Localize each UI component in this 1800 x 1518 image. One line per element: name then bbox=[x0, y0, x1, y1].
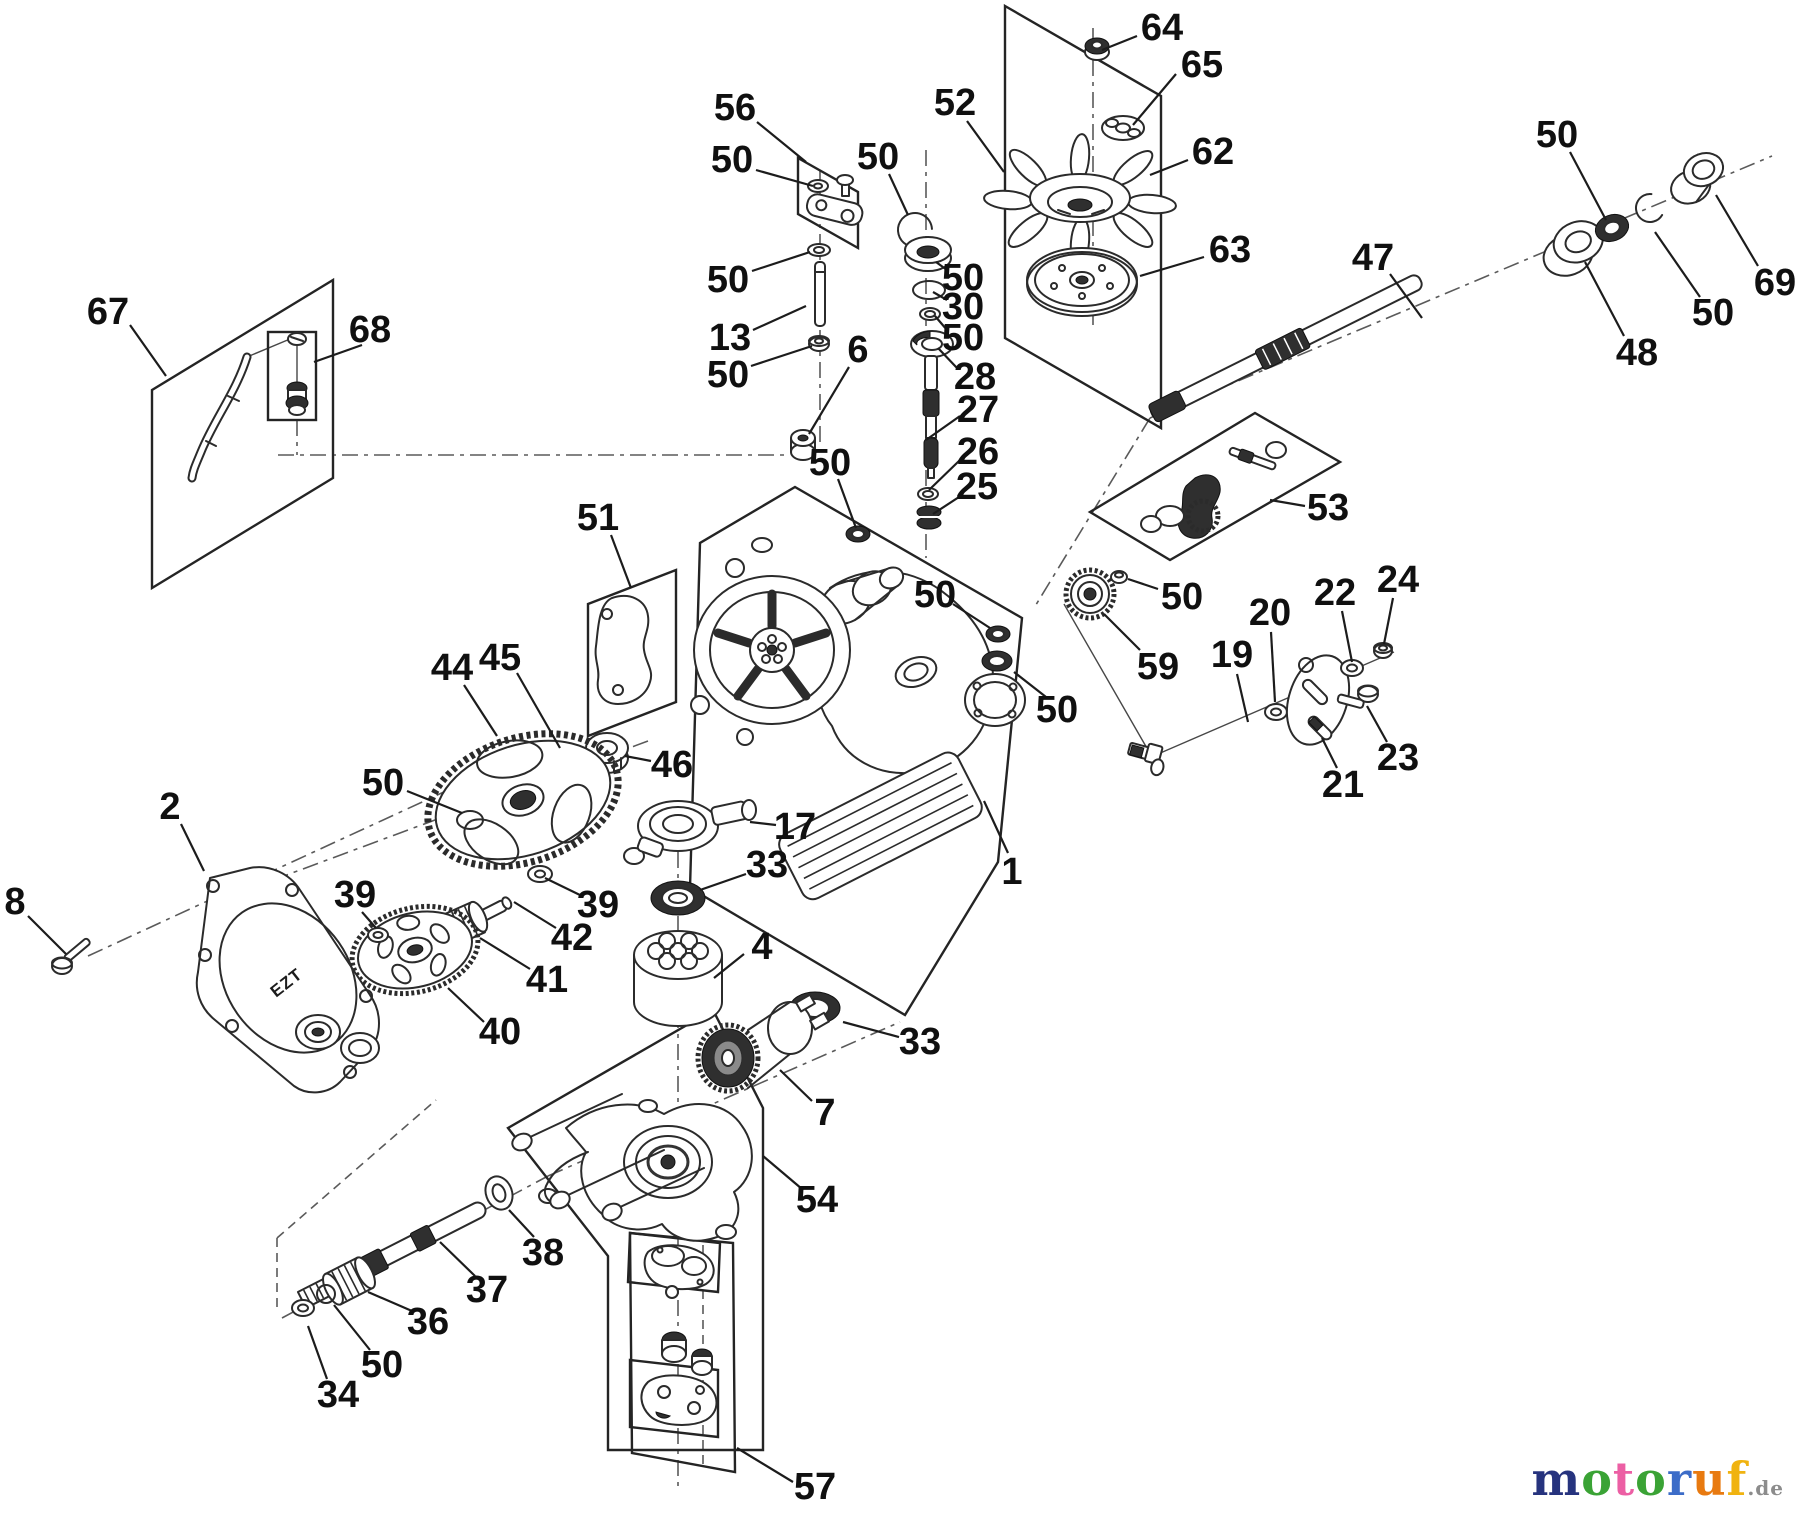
washer-50-above-pin bbox=[808, 244, 830, 256]
callout-25: 25 bbox=[956, 466, 998, 508]
leader-line-63 bbox=[1140, 257, 1204, 276]
leader-line-24 bbox=[1384, 598, 1393, 644]
callout-65: 65 bbox=[1181, 44, 1223, 86]
callout-4: 4 bbox=[751, 926, 772, 968]
fan-62 bbox=[983, 133, 1176, 266]
washer-26 bbox=[918, 488, 938, 500]
valve-washer bbox=[666, 1286, 678, 1298]
control-kit-53 bbox=[1141, 442, 1286, 538]
leader-line-42 bbox=[514, 902, 556, 928]
shaft-47 bbox=[1147, 270, 1425, 424]
cover-seal-boss bbox=[296, 1015, 340, 1049]
oil-tube-67-inner bbox=[192, 357, 247, 478]
leader-line-20 bbox=[1271, 632, 1275, 702]
callout-48: 48 bbox=[1616, 332, 1658, 374]
leader-line-53 bbox=[1270, 500, 1305, 506]
callout-50: 50 bbox=[914, 574, 956, 616]
callout-50: 50 bbox=[809, 442, 851, 484]
callout-27: 27 bbox=[957, 389, 999, 431]
callout-45: 45 bbox=[479, 637, 521, 679]
callout-38: 38 bbox=[522, 1232, 564, 1274]
callout-54: 54 bbox=[796, 1179, 838, 1221]
leader-line-48 bbox=[1585, 262, 1624, 336]
leader-line-2 bbox=[181, 824, 204, 871]
brake-gear-assembly bbox=[1066, 570, 1127, 618]
callout-36: 36 bbox=[407, 1301, 449, 1343]
leader-line-33 bbox=[700, 874, 746, 890]
watermark-letter: o bbox=[1635, 1452, 1667, 1506]
bolt-53-head bbox=[1266, 442, 1286, 458]
center-section-54 bbox=[510, 1094, 752, 1241]
leader-line-50 bbox=[1128, 579, 1158, 589]
leader-line-13 bbox=[753, 306, 806, 330]
callout-67: 67 bbox=[87, 291, 129, 333]
callout-52: 52 bbox=[934, 82, 976, 124]
housing-ear bbox=[691, 696, 709, 714]
gasket-51 bbox=[596, 596, 652, 704]
leader-line-69 bbox=[1716, 195, 1758, 266]
callout-50: 50 bbox=[1161, 576, 1203, 618]
center-section-body bbox=[566, 1104, 752, 1241]
housing-top-boss bbox=[752, 538, 772, 552]
leader-line-6 bbox=[809, 367, 849, 434]
valve-kit-57 bbox=[641, 1245, 716, 1425]
cap-69 bbox=[1662, 148, 1732, 209]
valve-plugs bbox=[662, 1332, 712, 1375]
retaining-ring-50-right bbox=[1631, 189, 1669, 227]
bracket-kit-assembly bbox=[791, 175, 864, 460]
callout-7: 7 bbox=[814, 1092, 835, 1134]
callout-50: 50 bbox=[1692, 292, 1734, 334]
callout-69: 69 bbox=[1754, 262, 1796, 304]
leader-line-57 bbox=[737, 1448, 793, 1482]
callout-46: 46 bbox=[651, 744, 693, 786]
callout-33: 33 bbox=[899, 1021, 941, 1063]
leader-line-50 bbox=[838, 479, 856, 528]
callout-19: 19 bbox=[1211, 634, 1253, 676]
watermark-letter: u bbox=[1692, 1452, 1726, 1506]
leader-line-59 bbox=[1104, 614, 1140, 650]
callout-50: 50 bbox=[707, 354, 749, 396]
watermark: motoruf.de bbox=[1532, 1452, 1784, 1506]
callout-37: 37 bbox=[466, 1269, 508, 1311]
watermark-suffix: .de bbox=[1747, 1476, 1784, 1500]
vent-fitting-68 bbox=[286, 333, 308, 415]
leader-line-50 bbox=[756, 170, 813, 186]
callout-50: 50 bbox=[1536, 114, 1578, 156]
charge-pump-cover bbox=[965, 674, 1025, 726]
gear-train bbox=[343, 708, 636, 1007]
callout-50: 50 bbox=[707, 259, 749, 301]
housing-ear bbox=[726, 559, 744, 577]
valve-plate-bottom bbox=[641, 1375, 716, 1425]
leader-line-7 bbox=[780, 1070, 812, 1101]
cover-seal-boss bbox=[341, 1033, 379, 1063]
pin-13 bbox=[815, 262, 825, 326]
leader-line-34 bbox=[308, 1326, 327, 1379]
callout-62: 62 bbox=[1192, 131, 1234, 173]
leader-line-44 bbox=[464, 685, 497, 736]
callout-50: 50 bbox=[1036, 689, 1078, 731]
nut-24 bbox=[1374, 643, 1392, 658]
bolt-8 bbox=[52, 938, 91, 974]
exploded-view-canvas: EZT bbox=[0, 0, 1800, 1518]
callout-21: 21 bbox=[1322, 764, 1364, 806]
watermark-letters: motoruf bbox=[1532, 1452, 1748, 1506]
callout-8: 8 bbox=[4, 881, 25, 923]
callout-20: 20 bbox=[1249, 592, 1291, 634]
callout-50: 50 bbox=[361, 1344, 403, 1386]
callout-50: 50 bbox=[711, 139, 753, 181]
callout-13: 13 bbox=[709, 317, 751, 359]
callout-23: 23 bbox=[1377, 737, 1419, 779]
oil-tube-panel bbox=[152, 280, 333, 588]
callout-68: 68 bbox=[349, 309, 391, 351]
callout-51: 51 bbox=[577, 497, 619, 539]
leader-line-36 bbox=[368, 1292, 412, 1311]
callout-50: 50 bbox=[857, 136, 899, 178]
fitting-19 bbox=[1124, 739, 1168, 777]
watermark-letter: o bbox=[1581, 1452, 1613, 1506]
housing-1 bbox=[691, 526, 1025, 903]
callout-44: 44 bbox=[431, 647, 473, 689]
washer-20 bbox=[1265, 704, 1287, 720]
leader-line-52 bbox=[967, 121, 1004, 172]
housing-round-face bbox=[694, 576, 850, 724]
leader-line-17 bbox=[750, 822, 776, 825]
leader-line-65 bbox=[1133, 74, 1176, 125]
callout-50: 50 bbox=[362, 762, 404, 804]
nut-50-below-pin bbox=[809, 336, 829, 351]
leader-line-41 bbox=[480, 938, 530, 969]
callout-59: 59 bbox=[1137, 646, 1179, 688]
callout-2: 2 bbox=[159, 786, 180, 828]
leader-line-50 bbox=[1655, 232, 1700, 297]
callout-22: 22 bbox=[1314, 572, 1356, 614]
leader-line-19 bbox=[1237, 674, 1248, 722]
callout-24: 24 bbox=[1377, 559, 1419, 601]
spring-rings-25 bbox=[917, 506, 941, 529]
callout-17: 17 bbox=[774, 806, 816, 848]
leader-line-62 bbox=[1150, 160, 1188, 175]
callout-63: 63 bbox=[1209, 229, 1251, 271]
callout-1: 1 bbox=[1001, 851, 1022, 893]
leader-line-50 bbox=[752, 252, 810, 271]
leader-line-22 bbox=[1342, 611, 1352, 662]
cylinder-block-4 bbox=[634, 931, 722, 1026]
callout-42: 42 bbox=[551, 917, 593, 959]
callout-40: 40 bbox=[479, 1011, 521, 1053]
nut-50-gear bbox=[1111, 571, 1127, 583]
washer-38 bbox=[481, 1173, 517, 1214]
callout-47: 47 bbox=[1352, 237, 1394, 279]
callout-57: 57 bbox=[794, 1466, 836, 1508]
leader-line-67 bbox=[130, 325, 166, 376]
top-fitting bbox=[639, 1100, 657, 1112]
axle-shaft-right-assembly bbox=[1147, 148, 1732, 424]
callout-50: 50 bbox=[942, 317, 984, 359]
washer-22 bbox=[1341, 660, 1363, 676]
callout-33: 33 bbox=[746, 844, 788, 886]
callout-53: 53 bbox=[1307, 487, 1349, 529]
trunnion-bushing-end bbox=[1141, 516, 1161, 532]
callout-39: 39 bbox=[334, 874, 376, 916]
input-shaft-stack bbox=[892, 207, 953, 529]
watermark-letter: t bbox=[1613, 1452, 1635, 1506]
washer-34 bbox=[292, 1300, 314, 1316]
callout-41: 41 bbox=[526, 959, 568, 1001]
seal-50-housing-top bbox=[846, 526, 870, 542]
leader-line-50 bbox=[1570, 152, 1606, 220]
parts-diagram: EZT bbox=[0, 0, 1800, 1518]
leader-line-8 bbox=[28, 916, 66, 954]
callout-56: 56 bbox=[714, 87, 756, 129]
watermark-letter: r bbox=[1667, 1452, 1692, 1506]
housing-ear bbox=[737, 729, 753, 745]
pulley-63 bbox=[1027, 248, 1137, 316]
bolt-56 bbox=[837, 175, 853, 196]
leader-line-50 bbox=[751, 346, 812, 366]
watermark-letter: f bbox=[1727, 1452, 1748, 1506]
washer-39-left bbox=[368, 928, 388, 942]
pump-shaft-27 bbox=[923, 356, 939, 478]
callout-34: 34 bbox=[317, 1374, 359, 1416]
callout-6: 6 bbox=[847, 329, 868, 371]
leader-line-50 bbox=[889, 174, 908, 215]
callout-64: 64 bbox=[1141, 7, 1183, 49]
leader-line-56 bbox=[757, 122, 806, 162]
watermark-letter: m bbox=[1532, 1452, 1582, 1506]
leader-line-51 bbox=[611, 535, 631, 588]
seal-33-upper bbox=[651, 881, 705, 915]
foot-boss bbox=[716, 1225, 736, 1239]
